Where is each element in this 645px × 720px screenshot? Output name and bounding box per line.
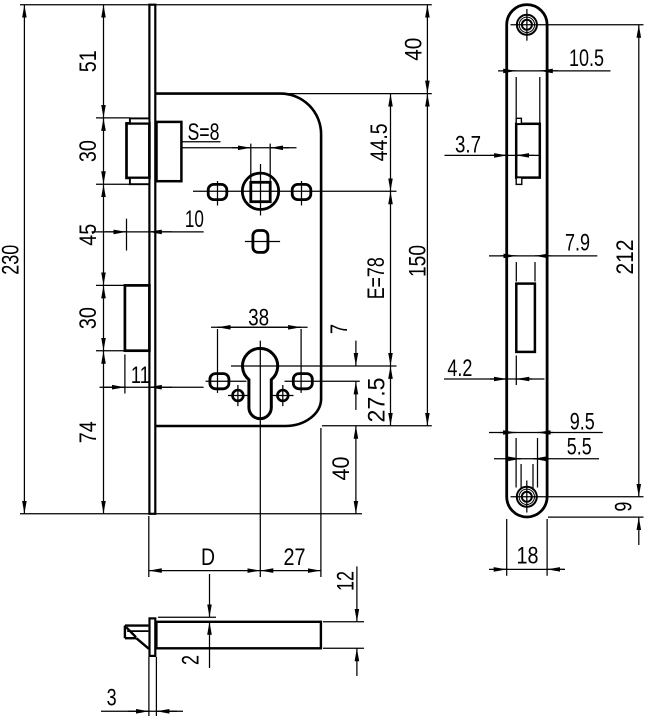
svg-text:150: 150 — [405, 245, 432, 277]
svg-text:212: 212 — [612, 240, 639, 275]
svg-text:D: D — [201, 544, 215, 571]
svg-text:5.5: 5.5 — [567, 434, 592, 461]
svg-text:9: 9 — [610, 502, 637, 512]
svg-text:11: 11 — [131, 362, 150, 389]
svg-text:7.9: 7.9 — [565, 230, 590, 257]
svg-text:27.5: 27.5 — [364, 378, 391, 423]
svg-text:27: 27 — [284, 544, 306, 571]
svg-text:7: 7 — [326, 324, 353, 334]
svg-text:51: 51 — [75, 50, 102, 72]
svg-text:38: 38 — [248, 305, 269, 332]
svg-text:12: 12 — [333, 571, 360, 591]
svg-text:45: 45 — [75, 224, 102, 246]
svg-text:44.5: 44.5 — [366, 123, 393, 161]
svg-text:40: 40 — [328, 457, 355, 481]
svg-text:30: 30 — [75, 307, 102, 329]
svg-text:74: 74 — [75, 421, 102, 443]
svg-text:3: 3 — [107, 685, 117, 712]
svg-text:40: 40 — [400, 38, 427, 61]
svg-text:10.5: 10.5 — [569, 45, 604, 72]
svg-text:3.7: 3.7 — [455, 131, 481, 158]
svg-text:2: 2 — [177, 655, 204, 665]
svg-text:E=78: E=78 — [363, 257, 390, 299]
svg-text:9.5: 9.5 — [570, 409, 595, 436]
svg-text:10: 10 — [185, 206, 204, 233]
svg-text:230: 230 — [0, 245, 25, 275]
svg-text:18: 18 — [517, 543, 539, 570]
svg-text:30: 30 — [75, 140, 102, 162]
svg-text:4.2: 4.2 — [447, 355, 472, 382]
